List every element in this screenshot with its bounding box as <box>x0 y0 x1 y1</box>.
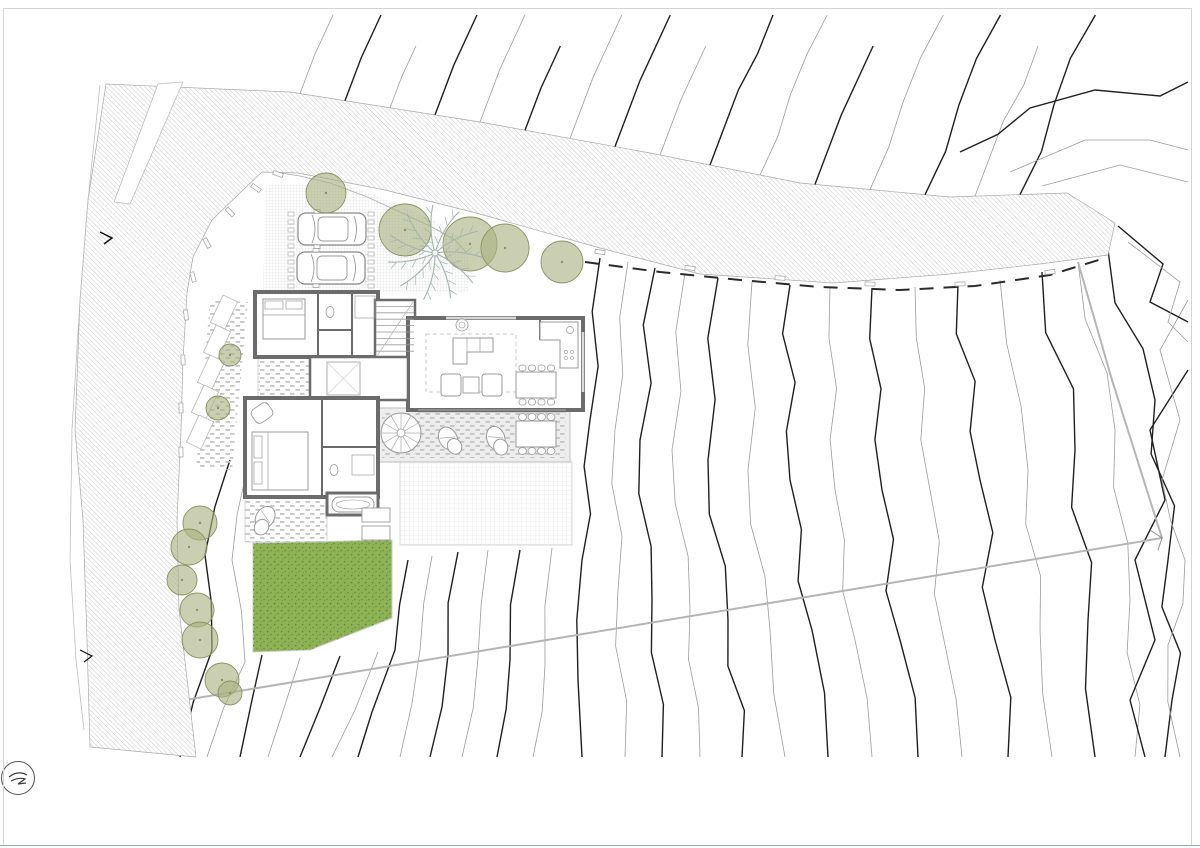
paver-tick <box>288 276 294 280</box>
paver-tick <box>288 260 294 264</box>
tree-trunk <box>181 579 183 581</box>
tree-trunk <box>504 247 506 249</box>
paver-tick <box>368 284 374 288</box>
plan-sheet: Lay out Este documento (tanto su parte g… <box>0 0 1200 848</box>
outdoor-chair <box>538 414 546 421</box>
dining-chair <box>529 399 536 405</box>
fence-post <box>179 447 183 457</box>
paver-tick <box>288 220 294 224</box>
bed <box>263 299 305 339</box>
tree-trunk <box>229 354 231 356</box>
tree-trunk <box>221 679 223 681</box>
paver-tick <box>368 276 374 280</box>
coffee-table <box>463 377 479 393</box>
outdoor-chair <box>547 448 555 455</box>
fence-post <box>179 403 183 413</box>
dining-chair <box>548 399 555 405</box>
west-deck <box>258 357 310 397</box>
paver-tick <box>368 268 374 272</box>
dining-chair <box>538 399 545 405</box>
outdoor-chair <box>519 414 527 421</box>
fence-post <box>775 276 785 281</box>
outdoor-chair <box>538 448 546 455</box>
house-floor-plan <box>245 292 583 545</box>
tree-trunk <box>188 546 190 548</box>
paver-tick <box>368 244 374 248</box>
paver-tick <box>288 228 294 232</box>
dining-chair <box>548 365 555 371</box>
paver-tick <box>368 220 374 224</box>
armchair <box>441 374 461 396</box>
outdoor-dining-table <box>516 421 556 447</box>
paver-tick <box>288 252 294 256</box>
outdoor-chair <box>519 448 527 455</box>
planter <box>362 526 390 540</box>
paver-tick <box>288 212 294 216</box>
paver-tick <box>368 228 374 232</box>
tree-trunk <box>561 261 563 263</box>
architect-logo <box>0 760 36 796</box>
dining-chair <box>529 365 536 371</box>
tree-trunk <box>325 192 327 194</box>
outdoor-chair <box>528 448 536 455</box>
outdoor-chair <box>547 414 555 421</box>
dining-chair <box>519 365 526 371</box>
tree-trunk <box>229 692 231 694</box>
sheet-bottom-rule <box>0 845 1200 846</box>
dining-table <box>516 372 556 398</box>
master-bed <box>252 432 308 490</box>
toilet <box>326 307 334 318</box>
paver-tick <box>288 244 294 248</box>
outdoor-chair <box>528 414 536 421</box>
pool-deck <box>400 462 572 545</box>
fence-post <box>183 310 188 320</box>
dining-chair <box>538 365 545 371</box>
armchair <box>482 374 502 396</box>
planter <box>362 508 390 522</box>
paver-tick <box>368 212 374 216</box>
tree-trunk <box>196 609 198 611</box>
title-block: Lay out Este documento (tanto su parte g… <box>0 760 1200 848</box>
tree-trunk <box>404 229 406 231</box>
tree-trunk <box>469 243 471 245</box>
fence-post <box>181 355 185 365</box>
tree-trunk <box>199 639 201 641</box>
paver-tick <box>368 252 374 256</box>
car-top-view-2 <box>297 249 365 288</box>
tree-trunk <box>217 407 219 409</box>
paver-tick <box>288 236 294 240</box>
tree-trunk <box>199 522 201 524</box>
paver-tick <box>368 260 374 264</box>
car-top-view <box>298 210 366 249</box>
dining-chair <box>519 399 526 405</box>
site-plan-drawing <box>0 0 1200 848</box>
side-table <box>456 319 468 331</box>
spiral-staircase <box>381 413 421 453</box>
paver-tick <box>368 236 374 240</box>
fence-post <box>685 265 695 270</box>
toilet <box>330 465 338 476</box>
fence-post <box>865 282 875 286</box>
paver-tick <box>288 284 294 288</box>
fence-post <box>955 282 965 286</box>
paver-tick <box>288 268 294 272</box>
